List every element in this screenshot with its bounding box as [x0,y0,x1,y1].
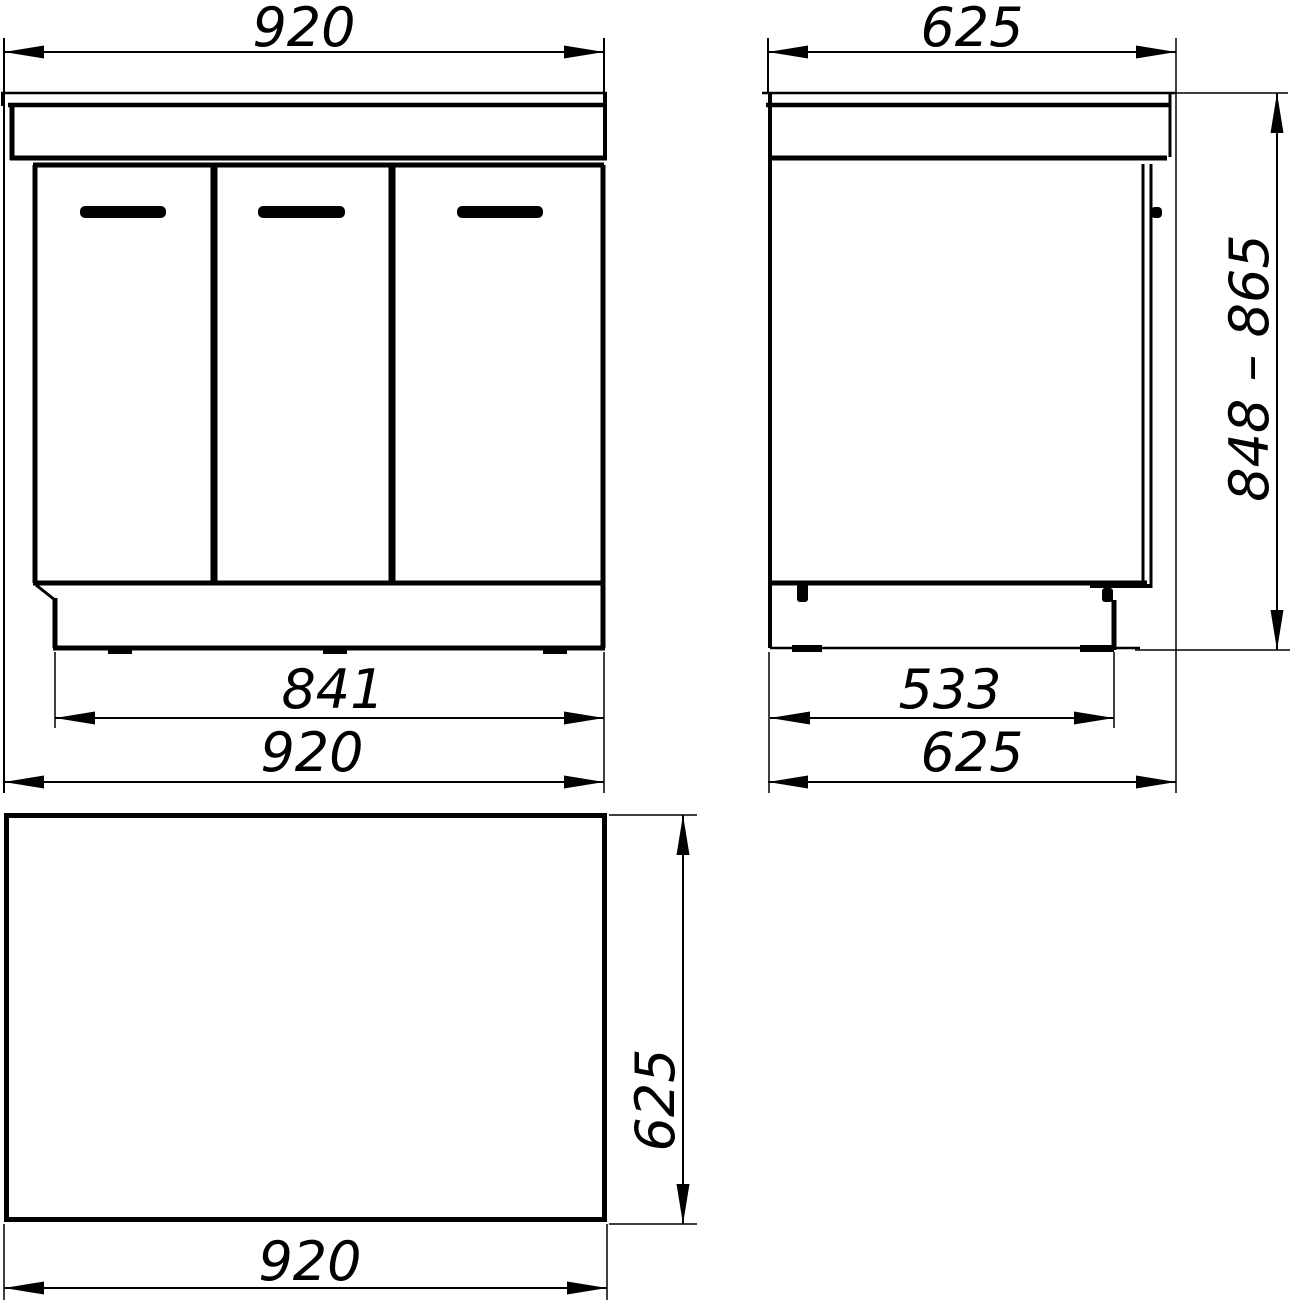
front-doors [33,165,604,648]
arrowhead-left-icon [4,776,44,789]
plinth-chamfer [36,585,55,600]
drawing-sheet: 920 [0,0,1290,1303]
dim-text-side-depth-bottom: 625 [920,721,1023,784]
foot [797,583,808,602]
arrowhead-right-icon [1136,46,1176,59]
foot-pad [792,645,822,652]
arrowhead-right-icon [1136,776,1176,789]
door-handle [80,206,166,218]
foot-pad [543,648,567,654]
dim-text-top-depth: 625 [624,1048,687,1151]
arrowhead-right-icon [564,712,604,725]
side-carcass [770,93,1162,652]
arrowhead-down-icon [677,1184,690,1224]
arrowhead-up-icon [1271,93,1284,133]
arrowhead-up-icon [677,815,690,855]
door-handle [258,206,345,218]
dim-text-front-width-top: 920 [252,0,355,59]
dim-text-front-width-bottom: 920 [260,721,363,784]
arrowhead-left-icon [4,46,44,59]
top-dim-width: 920 [4,1224,607,1300]
top-view: 625 920 [4,815,697,1300]
foot-pad [108,648,132,654]
side-worktop [762,93,1176,158]
arrowhead-right-icon [564,776,604,789]
arrowhead-right-icon [564,46,604,59]
arrowhead-right-icon [1074,712,1114,725]
front-view: 920 [1,0,607,793]
foot-pad [1080,645,1114,652]
top-dim-depth: 625 [609,815,697,1224]
arrowhead-left-icon [768,46,808,59]
foot-pad [323,648,347,654]
dim-text-side-height: 848 – 865 [1218,234,1281,501]
arrowhead-left-icon [768,776,808,789]
dim-text-top-width: 920 [258,1230,361,1293]
dim-text-side-base-depth: 533 [898,658,1001,721]
arrowhead-down-icon [1271,610,1284,650]
top-view-outline [7,816,605,1220]
dim-text-side-depth-top: 625 [920,0,1023,59]
side-dim-depth-bottom: 625 [768,721,1176,789]
arrowhead-right-icon [567,1282,607,1295]
side-dim-height: 848 – 865 [1135,93,1290,650]
front-plinth [36,585,605,654]
arrowhead-left-icon [770,712,810,725]
foot [1102,588,1113,602]
dim-text-front-base-width: 841 [281,658,384,721]
side-view: 625 [762,0,1290,793]
door-knob [1151,207,1162,218]
arrowhead-left-icon [4,1282,44,1295]
door-handle [457,206,543,218]
arrowhead-left-icon [55,712,95,725]
front-dim-width-bottom: 920 [4,721,604,789]
cabinet-drawing: 920 [0,0,1290,1303]
front-dim-width-top: 920 [4,0,604,92]
front-worktop [1,93,607,160]
